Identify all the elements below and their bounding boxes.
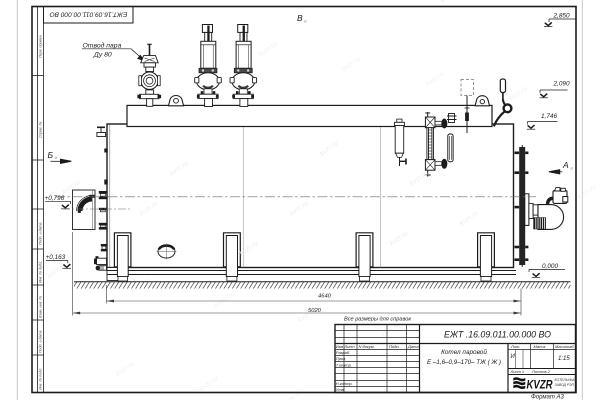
- svg-text:KVZR: KVZR: [527, 380, 554, 392]
- svg-text:⌀: ⌀: [55, 155, 58, 160]
- svg-text:Перв. примен.: Перв. примен.: [39, 34, 43, 58]
- svg-text:И: И: [511, 354, 516, 360]
- svg-text:Изм Лист: Изм Лист: [336, 344, 355, 349]
- svg-text:0,000: 0,000: [542, 263, 558, 270]
- svg-text:ЗАВОД РЭП: ЗАВОД РЭП: [555, 383, 575, 387]
- svg-text:Взам. инв. №: Взам. инв. №: [39, 296, 43, 318]
- svg-text:Дата: Дата: [407, 344, 419, 349]
- svg-text:Справ. №: Справ. №: [39, 122, 43, 138]
- svg-text:Масштаб: Масштаб: [555, 344, 574, 349]
- svg-text:Инв. № подл.: Инв. № подл.: [39, 368, 43, 390]
- svg-text:Подп.: Подп.: [389, 344, 400, 349]
- svg-text:Утв.: Утв.: [336, 387, 345, 392]
- svg-text:Листов 2: Листов 2: [531, 369, 551, 374]
- svg-text:ЕЖТ.16.09.011.00.000 ВО: ЕЖТ.16.09.011.00.000 ВО: [50, 10, 128, 17]
- svg-text:Т.контр.: Т.контр.: [336, 362, 352, 367]
- svg-text:Инв. № дубл.: Инв. № дубл.: [39, 261, 43, 283]
- svg-text:+0,163: +0,163: [46, 254, 66, 261]
- svg-text:Масса: Масса: [534, 344, 547, 349]
- svg-text:N докум.: N докум.: [359, 344, 375, 349]
- svg-text:2,850: 2,850: [553, 13, 570, 20]
- svg-text:Ду 80: Ду 80: [93, 52, 112, 59]
- svg-text:1,746: 1,746: [541, 113, 557, 120]
- svg-text:4640: 4640: [318, 294, 332, 300]
- svg-text:Разраб.: Разраб.: [336, 350, 350, 355]
- svg-text:Все размеры для справок: Все размеры для справок: [344, 317, 411, 323]
- svg-text:Отвод пара: Отвод пара: [83, 42, 122, 50]
- svg-text:Пров.: Пров.: [336, 356, 347, 361]
- svg-text:2,090: 2,090: [553, 81, 570, 88]
- svg-text:Б: Б: [48, 150, 54, 160]
- svg-text:Подп. и дата: Подп. и дата: [39, 223, 43, 246]
- svg-text:Лист 1: Лист 1: [510, 369, 525, 374]
- svg-text:⌀: ⌀: [571, 166, 574, 171]
- svg-text:Н.контр.: Н.контр.: [336, 381, 353, 386]
- svg-text:⌀: ⌀: [304, 19, 307, 24]
- svg-text:Формат А3: Формат А3: [531, 395, 564, 400]
- svg-text:Лит.: Лит.: [510, 344, 520, 349]
- svg-text:КОТЕЛЬНЫЙ: КОТЕЛЬНЫЙ: [555, 378, 577, 382]
- svg-text:Котел паровой: Котел паровой: [441, 348, 487, 356]
- svg-text:Е –1,6–0,9–170– ТЖ ( Ж ): Е –1,6–0,9–170– ТЖ ( Ж ): [427, 359, 501, 366]
- svg-text:5020: 5020: [308, 308, 322, 314]
- svg-text:В: В: [297, 13, 303, 23]
- svg-text:1:15: 1:15: [558, 356, 570, 362]
- svg-text:ЕЖТ .16.09.011.00.000 ВО: ЕЖТ .16.09.011.00.000 ВО: [444, 330, 551, 340]
- svg-text:А: А: [562, 160, 569, 170]
- svg-text:+0,796: +0,796: [45, 195, 65, 202]
- svg-text:Подп. и дата: Подп. и дата: [39, 331, 43, 354]
